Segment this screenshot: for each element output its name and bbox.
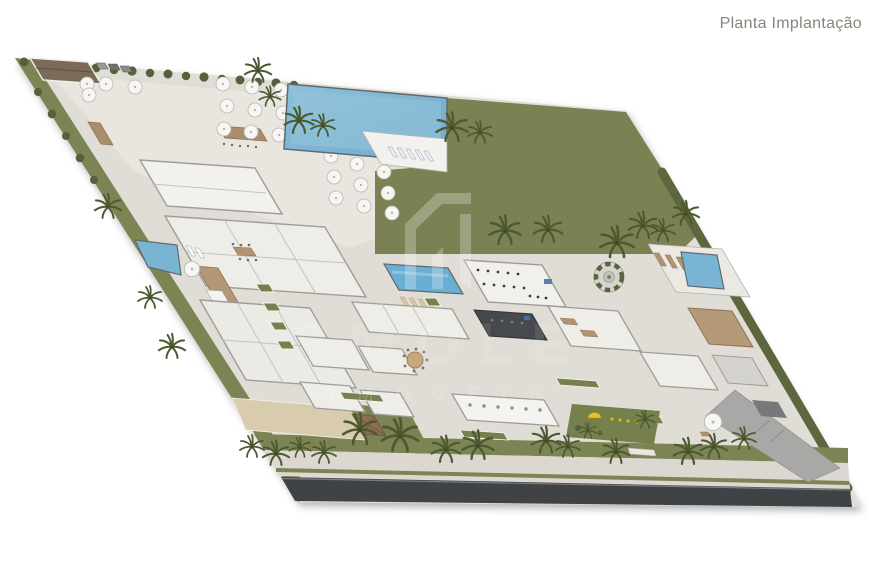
site-plan-rendering: SMOLE IMÓVEIS	[0, 0, 870, 580]
right-pool	[681, 252, 724, 289]
patio-umbrella	[704, 413, 722, 431]
watermark-word: SMOLE	[292, 312, 588, 377]
render-canvas: SMOLE IMÓVEIS Planta Implantação	[0, 0, 870, 580]
watermark-subtitle: IMÓVEIS	[330, 384, 563, 406]
left-pool	[135, 240, 181, 275]
mandala-garden	[588, 262, 630, 292]
page-title: Planta Implantação	[720, 15, 862, 33]
garden-umbrella	[184, 261, 199, 276]
playground	[566, 404, 660, 444]
